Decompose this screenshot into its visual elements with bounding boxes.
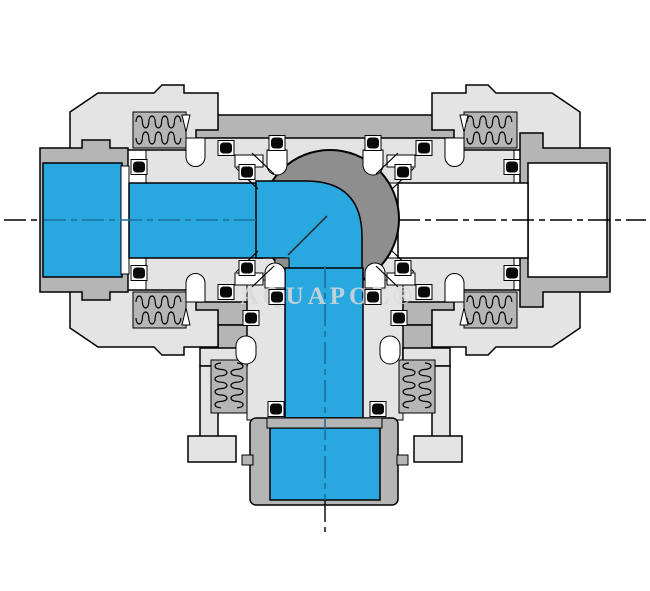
o-ring [395,165,411,180]
o-ring [370,402,386,417]
slot-top-right [445,138,464,167]
valve-cross-section-diagram: AQUAPOL® [0,0,650,591]
o-ring [269,136,285,151]
o-ring [218,141,234,156]
o-ring [268,402,284,417]
pipe-ridge-left [242,455,253,465]
o-ring [239,165,255,180]
slot-bottom-left [186,274,205,303]
threads-bottom-right [464,292,517,328]
seat-pocket-top-left [267,150,287,175]
slot-top-left [186,138,205,167]
seat-pocket-top-right [363,150,383,175]
o-ring [416,285,432,300]
o-ring [218,285,234,300]
slot-bottom-right [445,274,464,303]
branch-slot-left [236,336,256,364]
watermark-text: AQUAPOL® [240,283,416,310]
o-ring [269,290,285,305]
o-ring [365,136,381,151]
o-ring [131,160,147,175]
threads-top-left [133,112,186,148]
o-ring [131,266,147,281]
o-ring [365,290,381,305]
threads-top-right [464,112,517,148]
o-ring [395,261,411,276]
threads-bottom-left [133,292,186,328]
o-ring [504,266,520,281]
o-ring [504,160,520,175]
diagram-canvas: AQUAPOL® [0,0,650,591]
threads-branch-left [211,360,247,413]
o-ring [416,141,432,156]
branch-slot-right [380,336,400,364]
o-ring [239,261,255,276]
pipe-ridge-right [397,455,408,465]
o-ring [391,311,407,326]
threads-branch-right [399,360,435,413]
o-ring [243,311,259,326]
